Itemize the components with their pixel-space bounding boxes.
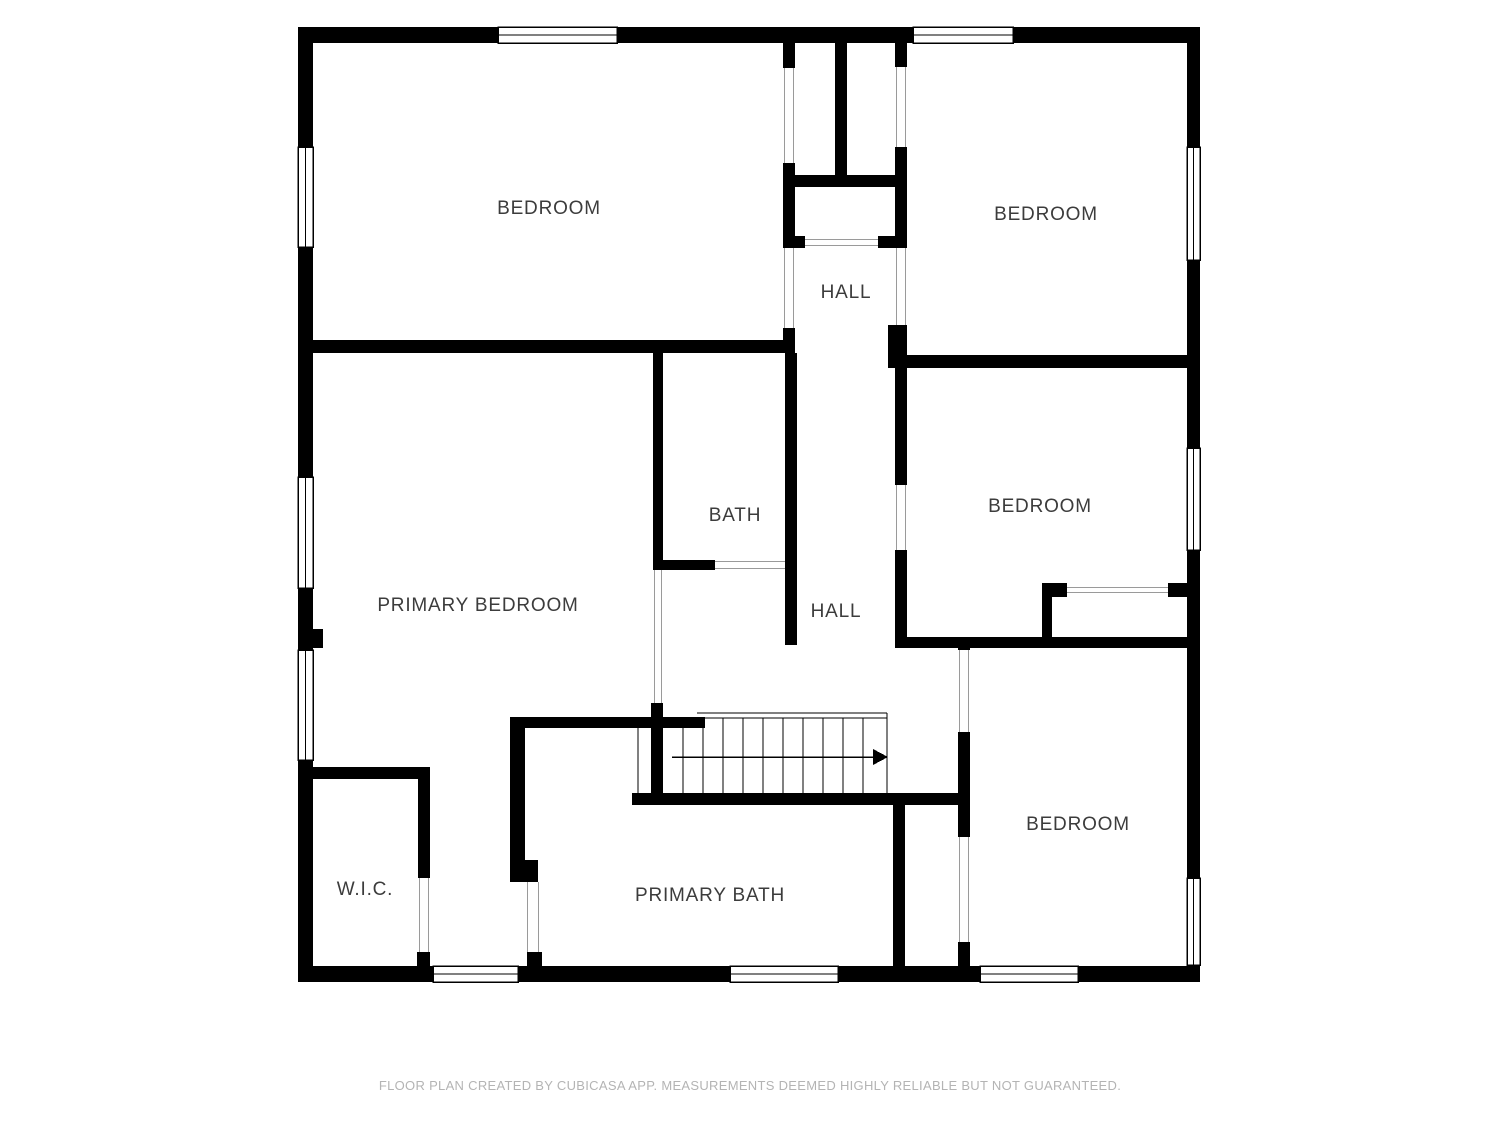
window bbox=[913, 27, 1013, 43]
room-label-hall-upper: HALL bbox=[821, 282, 872, 304]
window bbox=[433, 966, 518, 982]
wall-bath-left bbox=[653, 353, 663, 570]
wall-wic-right bbox=[418, 767, 430, 878]
room-label-primary-bath: PRIMARY BATH bbox=[635, 885, 785, 907]
wall-segment bbox=[895, 147, 907, 248]
window bbox=[298, 147, 313, 247]
door-opening bbox=[960, 650, 969, 732]
wall-belt-left bbox=[298, 340, 795, 353]
wall-segment bbox=[958, 942, 970, 980]
wall-segment bbox=[783, 175, 907, 187]
wall-segment bbox=[895, 43, 907, 67]
wall-segment bbox=[878, 236, 907, 248]
door-opening bbox=[897, 485, 906, 550]
floor-plan-page: BEDROOM BEDROOM HALL BATH BEDROOM PRIMAR… bbox=[0, 0, 1500, 1125]
room-label-wic: W.I.C. bbox=[337, 879, 394, 901]
window bbox=[1187, 147, 1200, 260]
wall-bath-bottom bbox=[653, 560, 715, 570]
wall-segment bbox=[958, 637, 970, 650]
wall-segment bbox=[895, 550, 907, 648]
door-opening bbox=[785, 248, 794, 328]
window bbox=[980, 966, 1078, 982]
door-opening bbox=[655, 570, 662, 703]
wall-segment bbox=[895, 368, 907, 485]
wall-segment bbox=[783, 236, 805, 248]
wall-primary-bath-left bbox=[510, 728, 525, 860]
room-label-bedroom-mid-right: BEDROOM bbox=[988, 496, 1092, 518]
floor-plan-drawing bbox=[0, 0, 1500, 1125]
door-opening bbox=[528, 882, 539, 952]
room-label-hall-lower: HALL bbox=[811, 601, 862, 623]
door-opening bbox=[785, 68, 794, 163]
door-opening bbox=[715, 562, 785, 569]
wall-segment bbox=[1168, 583, 1187, 597]
wall-stairs-bottom bbox=[632, 793, 970, 805]
wall-segment bbox=[417, 952, 430, 968]
window bbox=[298, 477, 313, 588]
wall-belt-lower-right bbox=[895, 637, 1200, 648]
closet-sliding-door bbox=[805, 240, 878, 246]
room-label-primary-bedroom: PRIMARY BEDROOM bbox=[377, 595, 578, 617]
window bbox=[1187, 878, 1200, 965]
wall-wic-top bbox=[298, 767, 430, 779]
wall-segment bbox=[835, 43, 847, 177]
window bbox=[730, 966, 838, 982]
wall-primary-bath-top bbox=[510, 717, 705, 728]
wall-segment bbox=[958, 732, 970, 837]
room-label-bath: BATH bbox=[709, 505, 761, 527]
room-label-bedroom-top-right: BEDROOM bbox=[994, 204, 1098, 226]
wall-bath-right bbox=[785, 353, 797, 645]
wall-landing-closet bbox=[893, 805, 905, 968]
wall-segment bbox=[783, 43, 795, 68]
room-label-bedroom-top-left: BEDROOM bbox=[497, 198, 601, 220]
room-label-bedroom-bottom-right: BEDROOM bbox=[1026, 814, 1130, 836]
window bbox=[298, 650, 313, 760]
door-opening bbox=[420, 878, 429, 952]
door-opening bbox=[897, 248, 906, 325]
stairs-direction-arrow bbox=[672, 749, 888, 765]
wall-segment bbox=[527, 952, 542, 968]
window bbox=[1187, 448, 1200, 550]
floor-plan: BEDROOM BEDROOM HALL BATH BEDROOM PRIMAR… bbox=[0, 0, 1500, 1125]
wall-segment bbox=[1042, 583, 1067, 597]
wall-exterior-top bbox=[298, 27, 1200, 43]
wall-pier-left bbox=[313, 629, 323, 648]
closet-sliding-door bbox=[1067, 588, 1168, 593]
door-opening bbox=[960, 837, 969, 942]
wall-segment bbox=[510, 860, 538, 882]
wall-belt-right bbox=[890, 355, 1200, 368]
stairs-arrow-head bbox=[873, 749, 888, 765]
door-opening bbox=[897, 67, 906, 147]
footer-disclaimer: FLOOR PLAN CREATED BY CUBICASA APP. MEAS… bbox=[379, 1078, 1121, 1093]
window bbox=[498, 27, 617, 43]
